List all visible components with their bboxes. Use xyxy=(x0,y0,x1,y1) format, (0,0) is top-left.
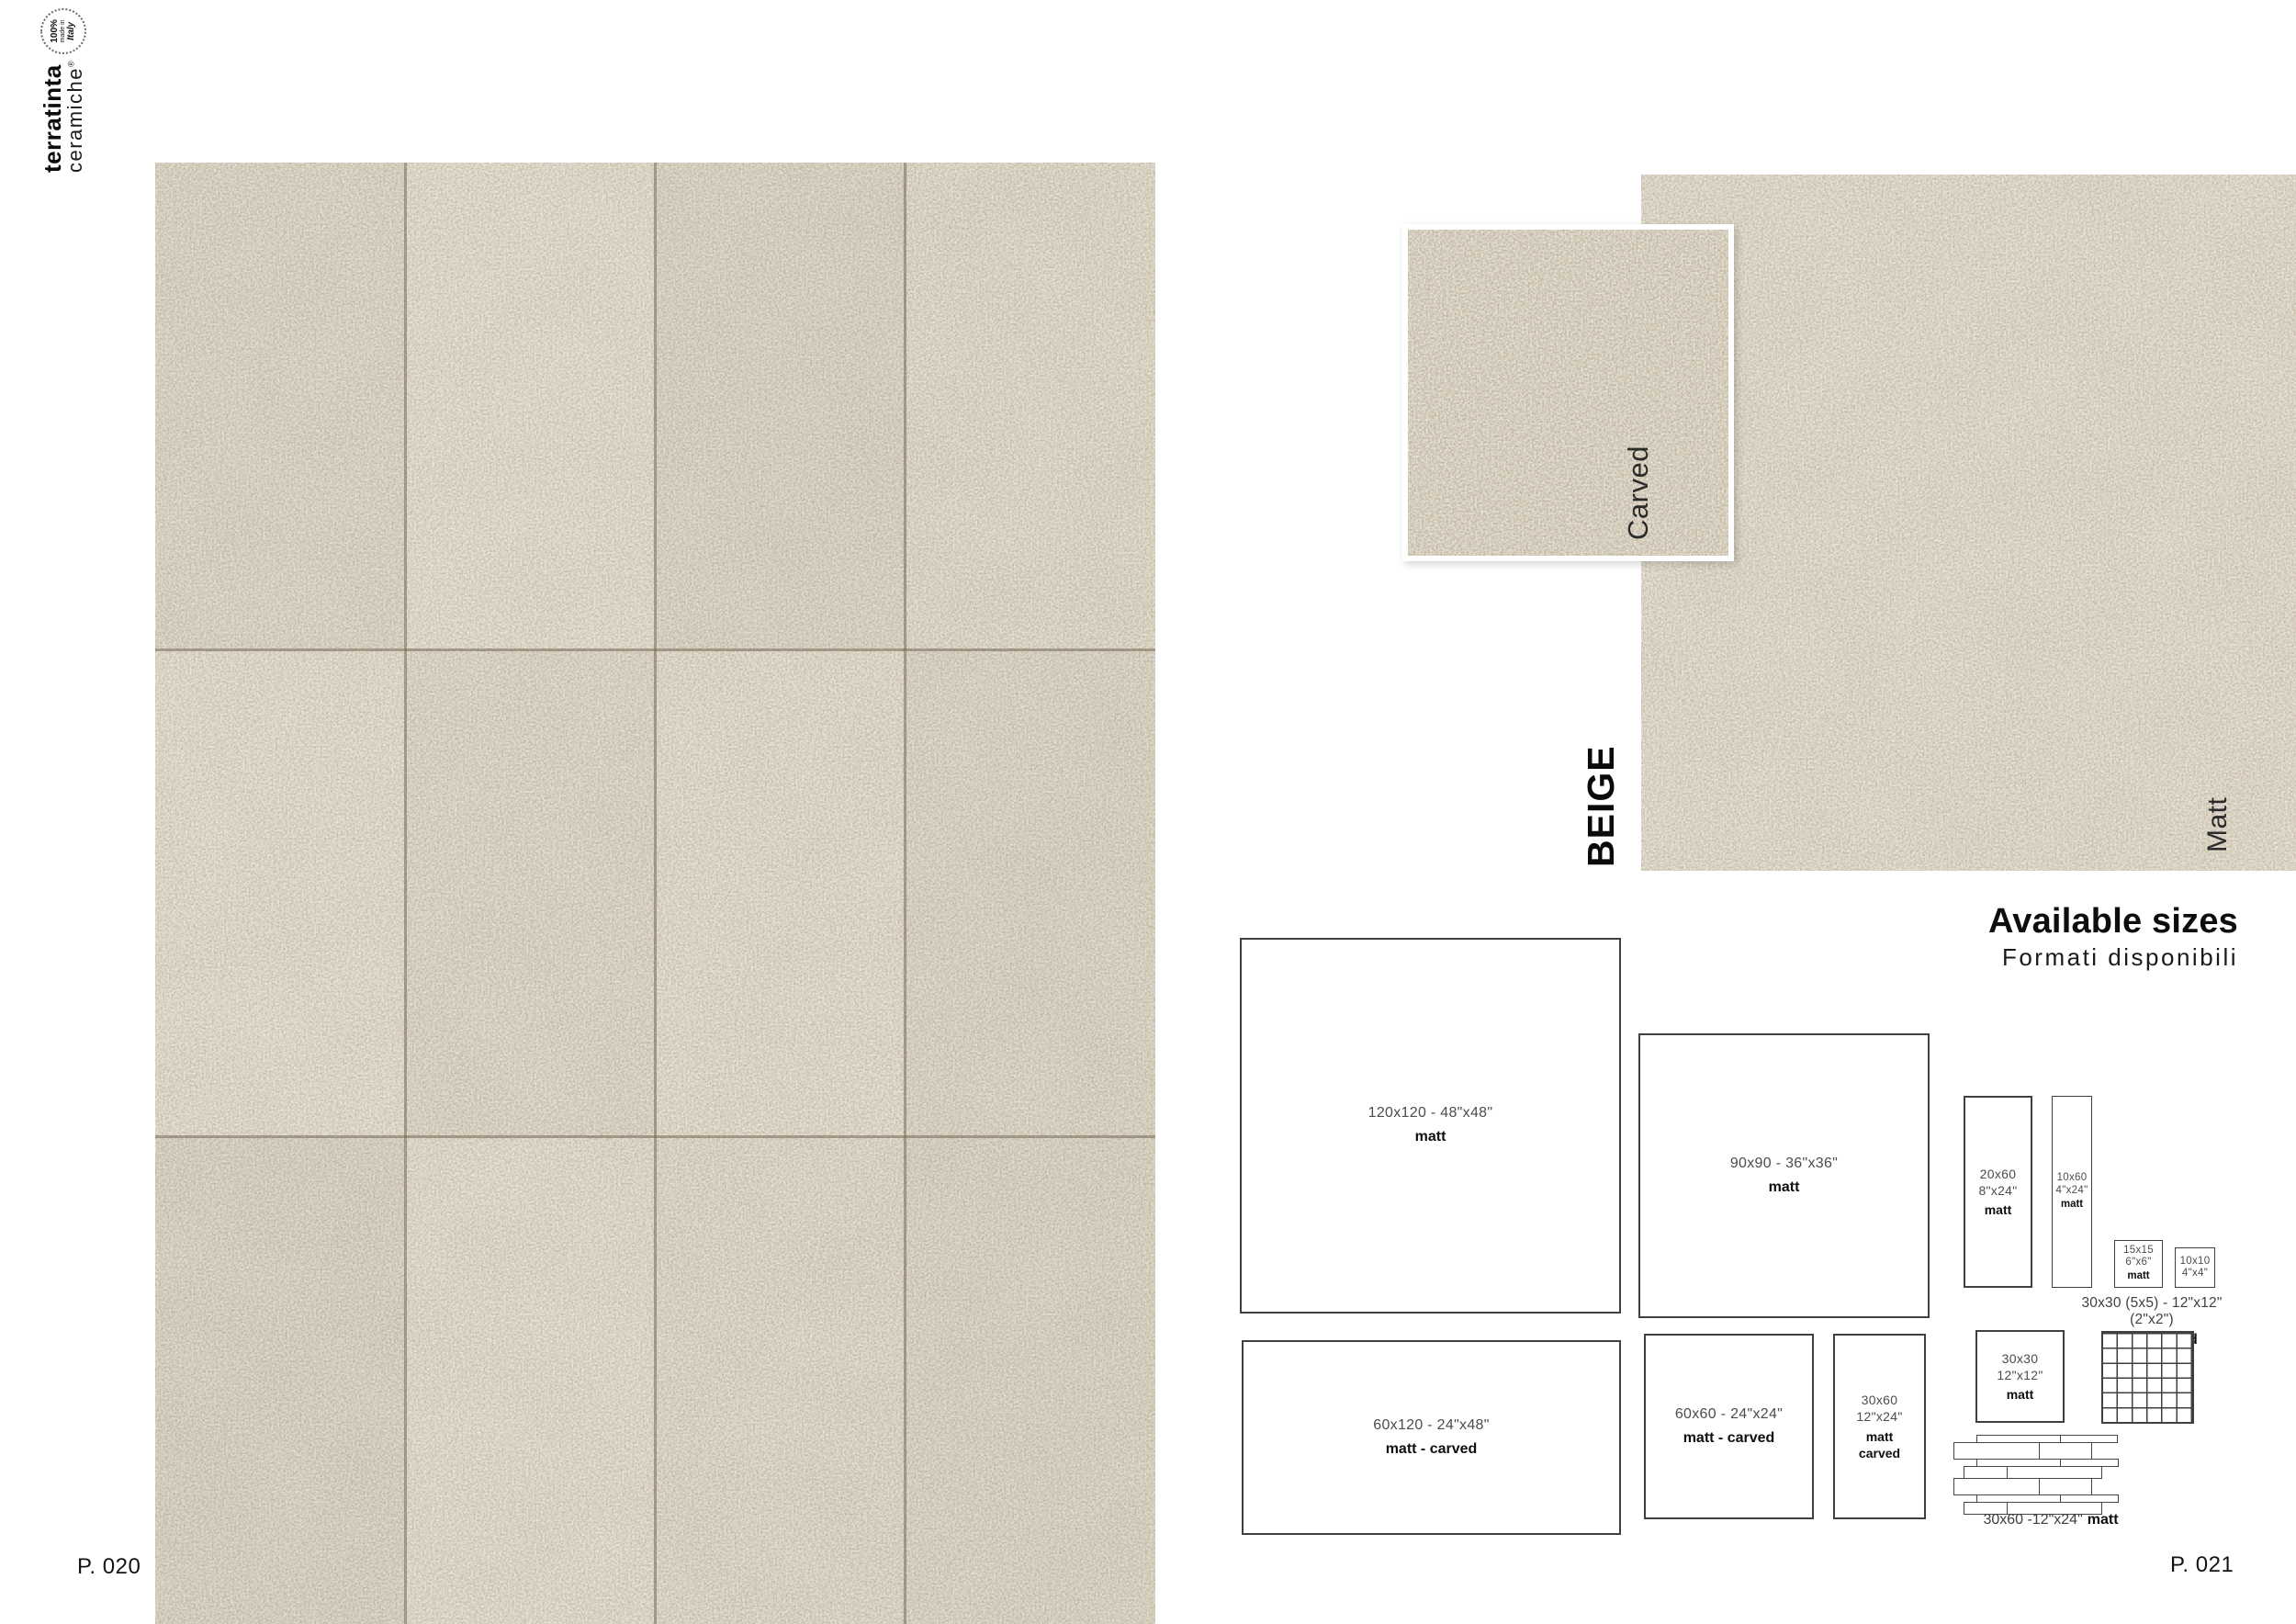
size-label: 20x60 xyxy=(1980,1166,2017,1182)
available-sizes-subtitle: Formati disponibili xyxy=(1988,943,2238,972)
size-label-inches: 12"x12" xyxy=(1997,1367,2043,1383)
available-sizes-title: Available sizes xyxy=(1988,904,2238,941)
grout-line xyxy=(404,163,407,1624)
finish-label: carved xyxy=(1859,1445,1900,1461)
page-number-left: P. 020 xyxy=(77,1554,141,1580)
tile-cell xyxy=(155,163,405,649)
made-in-italy-badge: 100% made in Italy xyxy=(40,8,86,54)
size-box-90x90: 90x90 - 36"x36" matt xyxy=(1638,1033,1930,1318)
finish-label: matt - carved xyxy=(1683,1429,1775,1449)
carved-texture xyxy=(1408,230,1728,556)
tile-floor-preview xyxy=(155,163,1155,1624)
catalog-spread: terratinta ceramiche® 100% made in Italy xyxy=(0,0,2296,1624)
carved-finish-swatch xyxy=(1402,224,1734,561)
brand-name: terratinta xyxy=(40,60,64,173)
size-label: 120x120 - 48"x48" xyxy=(1368,1104,1493,1123)
finish-label: matt xyxy=(2127,1269,2149,1283)
size-label-inches: 4"x24" xyxy=(2056,1185,2088,1197)
size-label: 15x15 xyxy=(2123,1245,2154,1257)
size-label: 10x60 xyxy=(2057,1172,2088,1184)
finish-label: matt - carved xyxy=(1386,1440,1478,1460)
size-label-inches: 4"x4" xyxy=(2182,1268,2208,1280)
muretto-brick xyxy=(2039,1442,2092,1460)
collection-title: BEIGE xyxy=(1580,745,1623,867)
size-label: 30x60 -12"x24" xyxy=(1983,1512,2082,1528)
size-label: 60x120 - 24"x48" xyxy=(1373,1416,1489,1436)
finish-label: matt xyxy=(1415,1128,1446,1147)
size-label: 30x30 xyxy=(2002,1350,2039,1367)
size-label: 90x90 - 36"x36" xyxy=(1730,1155,1838,1174)
grout-line xyxy=(155,1135,1155,1138)
muretto-brick xyxy=(1953,1478,2041,1495)
finish-label: matt xyxy=(1866,1428,1894,1445)
size-box-30x30: 30x30 12"x12" matt xyxy=(1975,1330,2065,1423)
tile-cell xyxy=(405,649,655,1136)
tile-cell xyxy=(155,1137,405,1624)
brand-subname: ceramiche® xyxy=(65,60,85,173)
tile-cell xyxy=(656,1137,906,1624)
size-label: 30x30 (5x5) - 12"x12"(2"x2") xyxy=(2060,1295,2244,1328)
finish-label: matt xyxy=(1985,1201,2012,1218)
matt-texture xyxy=(1641,175,2296,871)
size-label: 30x60 xyxy=(1862,1392,1898,1408)
grout-line xyxy=(155,648,1155,651)
brand-wordmark: terratinta ceramiche® xyxy=(40,60,85,173)
tile-cell xyxy=(906,649,1155,1136)
tile-cell xyxy=(906,1137,1155,1624)
muretto-brick xyxy=(1964,1466,2008,1479)
muretto-brick xyxy=(1953,1442,2041,1460)
tile-cell xyxy=(906,163,1155,649)
size-label-inches: 6"x6" xyxy=(2125,1257,2151,1269)
muretto-brick xyxy=(2039,1478,2092,1495)
muretto-caption: 30x60 -12"x24"matt xyxy=(1956,1512,2145,1528)
finish-label: matt xyxy=(2061,1198,2083,1212)
mosaic-grid-30x30 xyxy=(2101,1331,2194,1424)
size-box-15x15: 15x15 6"x6" matt xyxy=(2114,1240,2163,1288)
matt-finish-label: Matt xyxy=(2202,797,2234,852)
tile-cell xyxy=(656,649,906,1136)
brand-logo: terratinta ceramiche® 100% made in Italy xyxy=(40,8,86,173)
tile-cell xyxy=(155,649,405,1136)
page-number-right: P. 021 xyxy=(2170,1552,2234,1578)
badge-country: Italy xyxy=(67,22,77,40)
size-box-60x120: 60x120 - 24"x48" matt - carved xyxy=(1242,1340,1621,1535)
finish-label: matt xyxy=(2007,1386,2034,1403)
size-box-60x60: 60x60 - 24"x24" matt - carved xyxy=(1644,1334,1814,1519)
size-box-10x60: 10x60 4"x24" matt xyxy=(2052,1096,2092,1288)
tile-cell xyxy=(405,1137,655,1624)
size-label-inches: 12"x24" xyxy=(1856,1408,1902,1425)
finish-label: matt xyxy=(1769,1179,1800,1198)
size-box-30x60: 30x60 12"x24" matt carved xyxy=(1833,1334,1926,1519)
available-sizes-heading: Available sizes Formati disponibili xyxy=(1988,904,2238,972)
carved-finish-label: Carved xyxy=(1622,445,1655,540)
grout-line xyxy=(654,163,657,1624)
size-box-10x10: 10x10 4"x4" xyxy=(2175,1247,2215,1288)
registered-mark: ® xyxy=(67,60,76,67)
size-label: 10x10 xyxy=(2180,1256,2211,1268)
size-box-120x120: 120x120 - 48"x48" matt xyxy=(1240,938,1621,1314)
size-label: 60x60 - 24"x24" xyxy=(1675,1405,1783,1425)
badge-percent: 100% xyxy=(51,19,61,43)
matt-finish-image xyxy=(1641,175,2296,871)
size-box-20x60: 20x60 8"x24" matt xyxy=(1964,1096,2032,1288)
tile-cell xyxy=(405,163,655,649)
tile-cell xyxy=(656,163,906,649)
finish-label: matt xyxy=(2088,1512,2119,1528)
size-label-inches: 8"x24" xyxy=(1978,1182,2017,1199)
grout-line xyxy=(904,163,906,1624)
muretto-brick xyxy=(2007,1466,2102,1479)
